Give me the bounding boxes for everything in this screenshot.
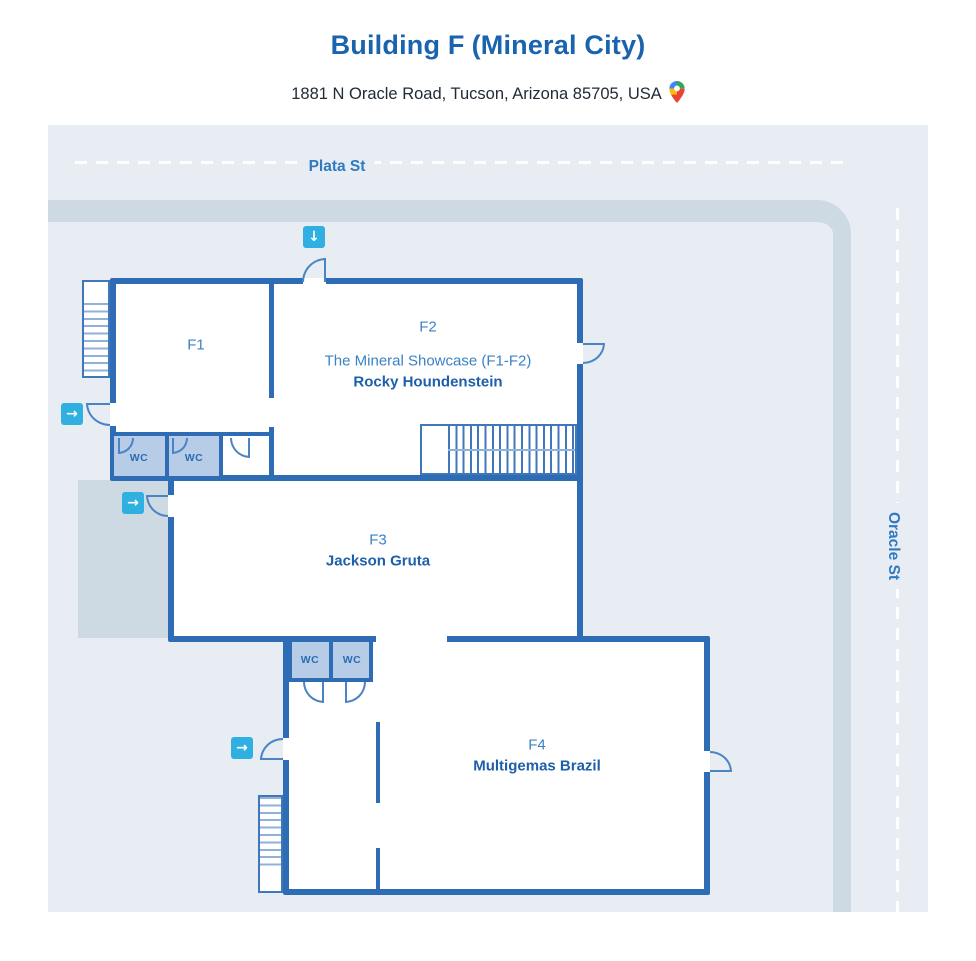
- wc-label-4: WC: [343, 654, 362, 666]
- arrow-down-icon: ↓: [308, 230, 320, 244]
- wall-f4-partition-upper: [376, 722, 380, 803]
- room-label-f1: F1: [187, 337, 205, 354]
- street-line-plata: [75, 161, 850, 164]
- room-tenant-f3: Jackson Gruta: [326, 553, 430, 570]
- building-subname: (Mineral City): [472, 30, 646, 60]
- arrow-right-icon: →: [127, 496, 139, 510]
- stairs-f1-treads: [84, 303, 108, 376]
- wc-wall-3: [329, 642, 333, 678]
- door-opening-f1-left: [110, 403, 116, 426]
- wc-wall-2: [219, 436, 223, 476]
- entrance-marker-f3: →: [122, 492, 144, 514]
- wall-f1-f2-upper: [269, 284, 274, 398]
- wall-f4-partition-lower: [376, 848, 380, 891]
- entrance-marker-top: ↓: [303, 226, 325, 248]
- entrance-marker-f4: →: [231, 737, 253, 759]
- room-tenant-f2: Rocky Houndenstein: [353, 374, 502, 391]
- arrow-right-icon: →: [66, 407, 78, 421]
- wc-label-3: WC: [301, 654, 320, 666]
- door-opening-f3-left: [168, 495, 174, 517]
- door-opening-f4-left: [283, 738, 289, 760]
- stairs-f2-midrail: [448, 449, 575, 451]
- floor-plan-map: Plata St Oracle St WC WC WC WC: [48, 125, 928, 912]
- room-label-f2: F2: [419, 319, 437, 336]
- entrance-marker-f1: →: [61, 403, 83, 425]
- passage-f3-f4: [376, 630, 447, 648]
- room-tenant-f4: Multigemas Brazil: [473, 758, 601, 775]
- wc-wall-1: [165, 436, 169, 476]
- stairs-f4-treads: [260, 797, 281, 868]
- wc-label-1: WC: [130, 452, 149, 464]
- street-label-plata: Plata St: [300, 158, 375, 176]
- room-label-f4: F4: [528, 737, 546, 754]
- page-title: Building F(Mineral City): [0, 30, 976, 61]
- wc-label-2: WC: [185, 452, 204, 464]
- building-name: Building F: [331, 30, 465, 60]
- arrow-right-icon: →: [236, 741, 248, 755]
- room-label-f3: F3: [369, 532, 387, 549]
- room-subtitle-f2: The Mineral Showcase (F1-F2): [325, 353, 532, 370]
- address-line: 1881 N Oracle Road, Tucson, Arizona 8570…: [0, 81, 976, 104]
- google-maps-pin-icon[interactable]: [669, 81, 685, 103]
- address-text: 1881 N Oracle Road, Tucson, Arizona 8570…: [291, 85, 662, 103]
- street-label-oracle: Oracle St: [884, 503, 902, 589]
